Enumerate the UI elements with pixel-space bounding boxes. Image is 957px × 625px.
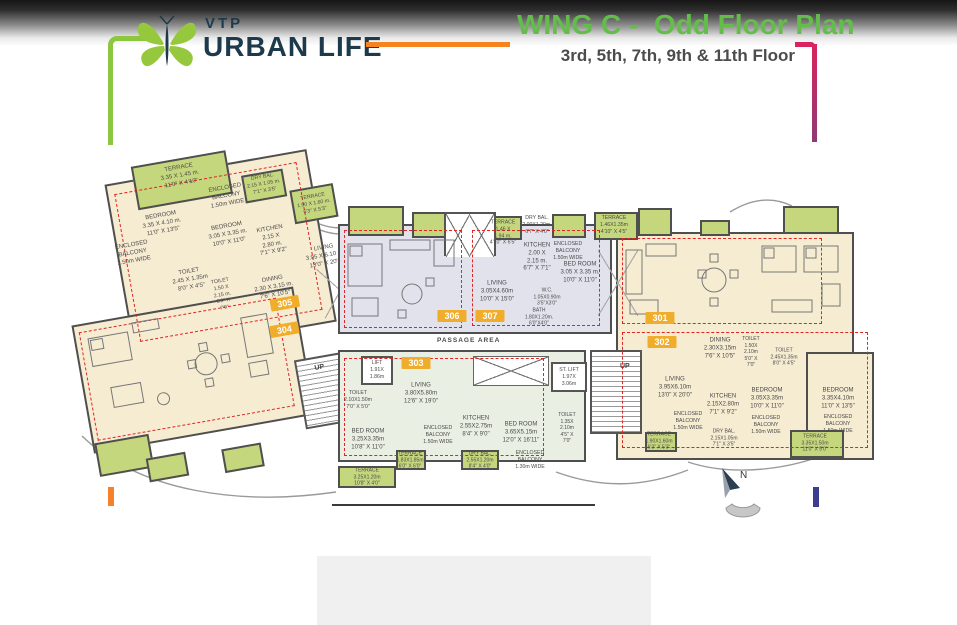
- north-label: N: [740, 470, 747, 481]
- stairs-right: [590, 350, 642, 434]
- room-label-302-encbal-mid: ENCLOSED BALCONY 1.50m WIDE: [745, 415, 787, 435]
- terrace-306-a: [348, 206, 404, 236]
- unit-badge-302: 302: [647, 336, 676, 348]
- room-label-302-toilet-wide: TOILET 2.45X1.35m 8'0" X 4'5": [762, 347, 806, 367]
- unit-badge-303: 303: [401, 357, 430, 369]
- room-label-303-living: LIVING 3.80X5.80m 12'6" X 19'0": [386, 382, 456, 405]
- blue-footer-tick: [813, 487, 819, 507]
- room-label-303-stlift: ST. LIFT 1.97X 3.06m: [552, 367, 586, 387]
- room-label-302-encbal-right: ENCLOSED BALCONY 1.50m WIDE: [817, 414, 859, 434]
- room-label-302-bedroom-right: BEDROOM 3.35X4.10m 11'0" X 13'5": [808, 387, 868, 410]
- room-label-307-wc: W.C. 1.05X0.90m 3'5"X3'0": [527, 287, 567, 307]
- terrace-301-c: [783, 206, 839, 234]
- room-label-303-encbal2: ENCLOSED BALCONY 1.30m WIDE: [509, 450, 551, 470]
- scale-line: [332, 504, 595, 506]
- duct-cross-mid: [473, 356, 549, 386]
- room-label-303-terrace-bottom-left: TERRACE 3.25X1.20m 10'8" X 4'0": [345, 467, 389, 487]
- room-label-307-bedroom: BED ROOM 3.05 X 3.35 m. 10'0" X 11'0": [545, 261, 615, 284]
- room-label-303-toilet-left: TOILET 2.10X1.50m 7'0" X 5'0": [336, 390, 380, 410]
- room-label-307-bath: BATH 1.80X1.20m. 6'0"X4'0": [517, 307, 561, 327]
- room-label-303-terrace-mid: TERRACE 1.83X1.85m 6'0" X 6'0": [392, 450, 428, 470]
- unit-badge-306: 306: [437, 310, 466, 322]
- room-label-305-toilet2: TOILET 1.50 X 2.15 m. 5'0" X 7'0": [203, 275, 242, 314]
- stairs-right-up-label: UP: [620, 363, 630, 370]
- room-label-303-toilet-right: TOILET 1.35X 2.10m 4'5" X 7'0": [552, 412, 582, 445]
- floor-plan-page: VTP URBAN LIFE WING C - Odd Floor Plan 3…: [0, 0, 957, 625]
- room-label-303-lift: LIFT 1.91X 1.86m: [362, 360, 392, 380]
- room-label-307-living: LIVING 3.05X4.60m 10'0" X 15'0": [462, 280, 532, 303]
- room-label-303-drybal: DRY BAL. 2.55X1.20m 8'4" X 4'0": [460, 450, 500, 470]
- unit-badge-307: 307: [475, 310, 504, 322]
- butterfly-logo-icon: [134, 12, 200, 76]
- room-label-307-drybal: DRY BAL. 2.00X1.20m. 6'7" X 4'0": [515, 215, 559, 235]
- room-label-307-encbal: ENCLOSED BALCONY 1.50m WIDE: [548, 241, 588, 261]
- room-label-302-terrace-left: TERRACE 1.90X1.60m 6'3" X 5'3": [640, 431, 678, 451]
- room-label-303-bedroom-right: BED ROOM 3.65X5.15m 12'0" X 16'11": [486, 421, 556, 444]
- terrace-304-right: [221, 443, 265, 474]
- terrace-301-a: [638, 208, 672, 236]
- room-label-302-encbal-left: ENCLOSED BALCONY 1.50m WIDE: [667, 411, 709, 431]
- unit-badge-301: 301: [645, 312, 674, 324]
- room-label-302-drybal: DRY BAL. 2.15X1.05m 7'1" X 3'5": [704, 428, 744, 448]
- passage-area-label: PASSAGE AREA: [437, 337, 500, 344]
- room-label-303-bedroom-left: BED ROOM 3.25X3.35m 10'8" X 11'0": [333, 428, 403, 451]
- cropped-bottom-panel: [317, 556, 651, 625]
- north-compass-icon: N: [708, 462, 772, 518]
- room-label-302-bedroom-mid: BEDROOM 3.05X3.35m 10'0" X 11'0": [732, 387, 802, 410]
- room-label-307-terrace-right: TERRACE 1.46X1.35m 4'10" X 4'5": [594, 215, 634, 235]
- room-label-302-terrace-right: TERRACE 3.35X1.50m 11'0" X 5'0": [793, 433, 837, 453]
- terrace-301-b: [700, 220, 730, 236]
